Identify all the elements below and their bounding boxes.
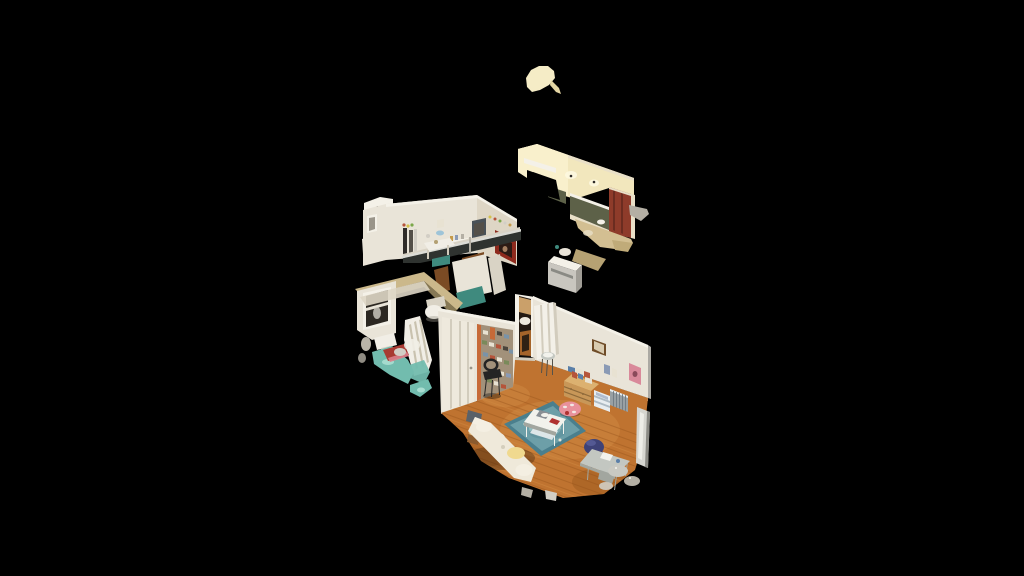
white-tray bbox=[541, 413, 549, 417]
fixture-fragment bbox=[394, 348, 406, 356]
doorway-warm-glow bbox=[519, 297, 531, 315]
picture-frame-inner bbox=[369, 217, 375, 231]
foil-clutter bbox=[599, 482, 613, 490]
shelf-bottle bbox=[402, 223, 405, 226]
black-chair-back-hole bbox=[486, 361, 496, 369]
rail-support bbox=[469, 237, 471, 253]
red-item-on-pouf bbox=[565, 411, 569, 415]
void-background bbox=[0, 0, 1024, 576]
foil-clutter bbox=[624, 476, 640, 486]
bicycle-silhouette bbox=[522, 334, 529, 352]
white-scan-bit bbox=[559, 248, 571, 256]
fixture-fragment bbox=[361, 337, 371, 351]
skull-face bbox=[503, 246, 508, 252]
dresser-knob bbox=[582, 393, 584, 395]
wall-card bbox=[437, 219, 444, 228]
sconce-fixture-dot bbox=[570, 175, 573, 178]
radiator-fin bbox=[625, 395, 626, 411]
door-panel-line bbox=[621, 193, 623, 234]
radiator-fin bbox=[619, 393, 620, 409]
table-item bbox=[434, 240, 438, 244]
pink-pouf bbox=[559, 402, 581, 417]
pouf-pattern bbox=[572, 411, 576, 413]
ledge-item bbox=[509, 224, 512, 227]
table-leg bbox=[427, 250, 429, 259]
fixture-fragment bbox=[404, 339, 420, 351]
table-leg bbox=[563, 421, 564, 434]
door-panel-line bbox=[613, 190, 615, 231]
wall-item bbox=[426, 234, 430, 238]
rug-dot bbox=[559, 439, 562, 442]
wall-bowl bbox=[436, 231, 444, 236]
ledge-item bbox=[504, 222, 507, 225]
window-reflection bbox=[373, 307, 381, 319]
daybed-pillow bbox=[476, 422, 492, 432]
table-leg bbox=[447, 245, 449, 255]
teal-scan-bit bbox=[555, 245, 559, 249]
item-on-desk bbox=[616, 459, 620, 463]
door-panel-line bbox=[459, 321, 461, 406]
floor-highlight bbox=[583, 230, 593, 236]
open-white-door bbox=[534, 302, 556, 360]
sconce-fixture-dot bbox=[593, 181, 596, 184]
stool-papers bbox=[543, 353, 553, 358]
fixture-fragment bbox=[358, 353, 366, 363]
pouf-pattern bbox=[563, 406, 567, 408]
round-table-through-doorway bbox=[520, 317, 531, 325]
collage-orange-patch bbox=[490, 327, 495, 340]
dresser-knob bbox=[570, 388, 572, 390]
foil-sparkle bbox=[629, 477, 631, 479]
shelf-bottle bbox=[406, 224, 409, 227]
ledge-item bbox=[499, 220, 502, 223]
hanging-item bbox=[409, 230, 413, 253]
lamp-glow-cushion bbox=[507, 447, 525, 459]
white-paneled-door bbox=[442, 317, 474, 412]
ledge-item bbox=[489, 216, 492, 219]
radiator-fin bbox=[613, 391, 614, 407]
hanging-dark-item bbox=[403, 228, 407, 256]
chair-highlight bbox=[586, 440, 596, 446]
appliance-face bbox=[474, 222, 484, 236]
shelf-item bbox=[461, 234, 464, 239]
collage-orange-strip bbox=[477, 324, 481, 401]
door-panel-line bbox=[467, 322, 469, 404]
kitchen-left-wall bbox=[363, 204, 386, 266]
pink-poster-figure bbox=[633, 371, 638, 377]
floor-highlight bbox=[597, 220, 605, 225]
pouf-pattern bbox=[570, 404, 574, 406]
sofa-pattern-dot bbox=[501, 445, 505, 449]
viewer-canvas[interactable]: Cutaway dollhouse 3D scan of an apartmen… bbox=[0, 0, 1024, 576]
rolled-blanket bbox=[516, 464, 533, 476]
stool-leg bbox=[552, 359, 553, 375]
door-panel-line bbox=[450, 319, 452, 409]
shelf-item bbox=[455, 235, 458, 240]
foil-sparkle bbox=[615, 467, 617, 469]
radiator-fin bbox=[616, 392, 617, 408]
wall-cut-edge bbox=[648, 345, 651, 399]
ledge-item bbox=[494, 218, 497, 221]
radiator-fin bbox=[622, 394, 623, 410]
hanging-white-item bbox=[414, 229, 417, 252]
door-knob bbox=[470, 367, 473, 370]
shelf-bottle bbox=[410, 223, 413, 226]
tile-highlight bbox=[417, 388, 425, 393]
foil-clutter bbox=[608, 465, 628, 477]
daybed-pillow bbox=[489, 433, 505, 444]
dollhouse-model[interactable]: Cutaway dollhouse 3D scan of an apartmen… bbox=[0, 0, 1024, 576]
doorway-frame bbox=[515, 295, 519, 357]
